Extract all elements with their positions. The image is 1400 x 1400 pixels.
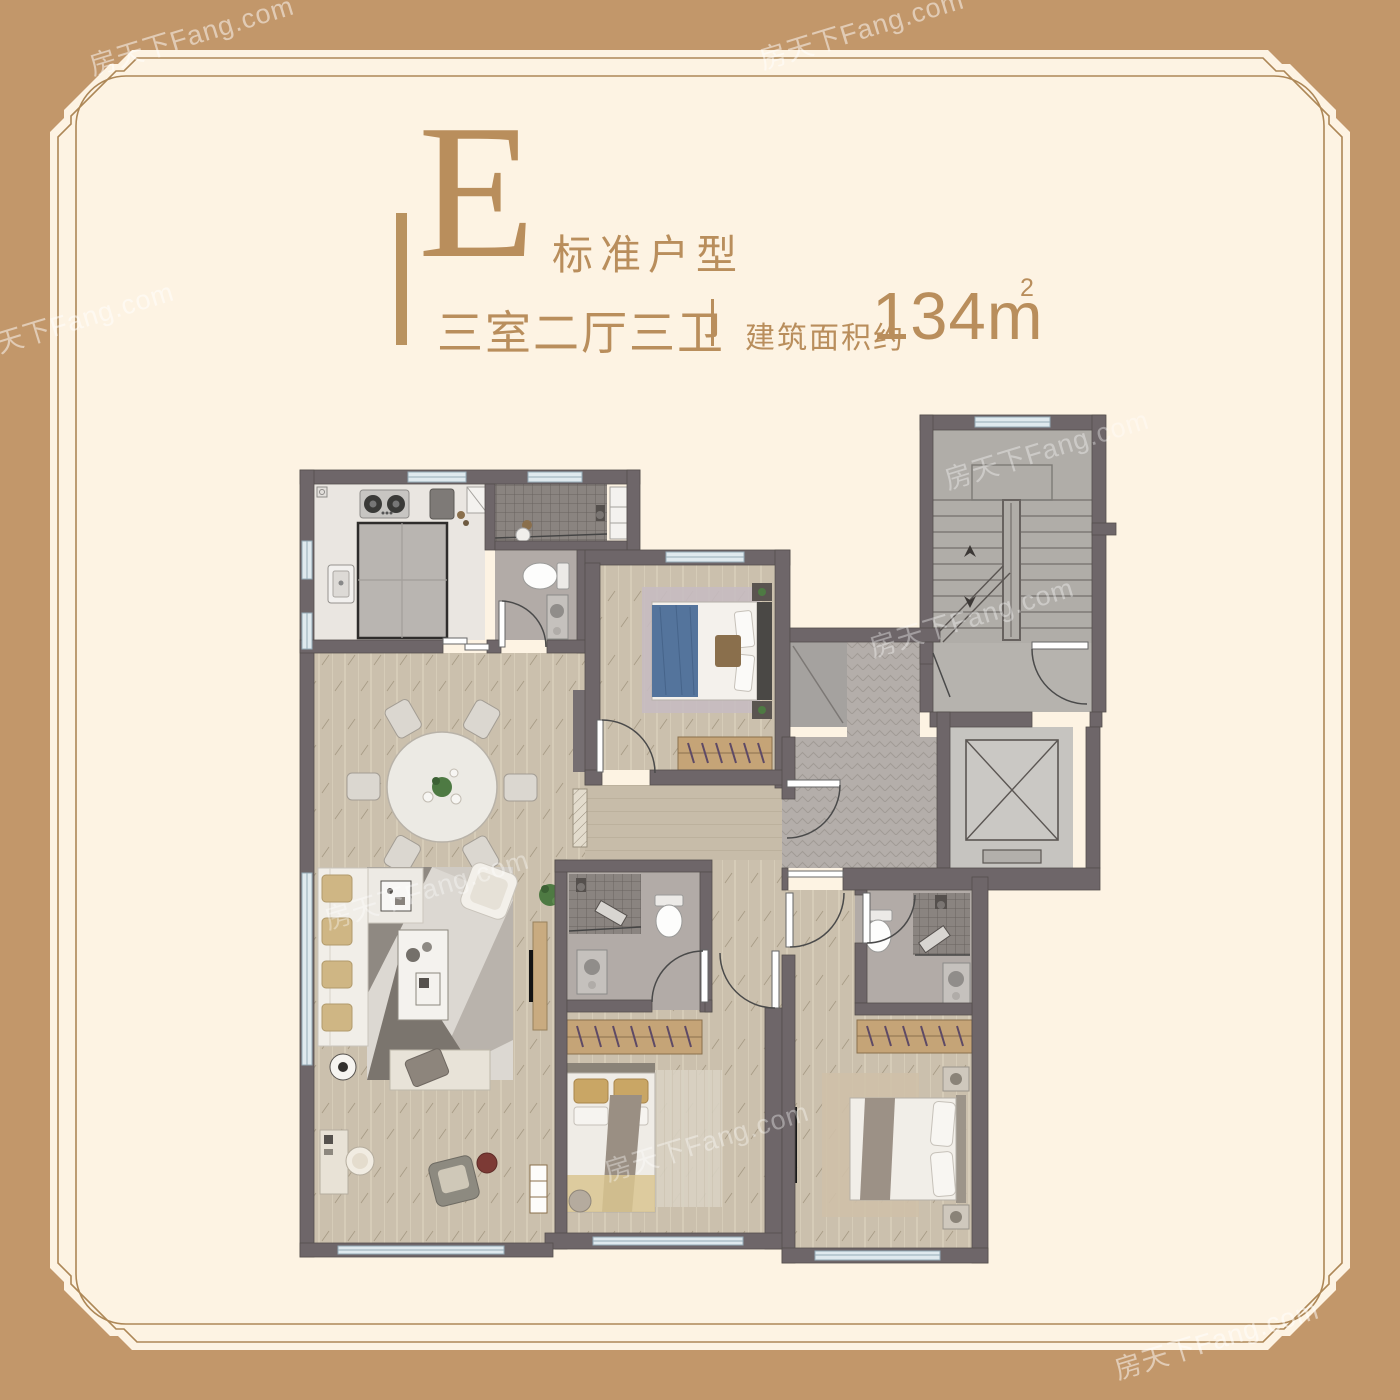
title-accent-bar [396,213,407,345]
floorplan-poster: E 标准户型 三室二厅三卫 建筑面积约 134m 2 [0,0,1400,1400]
unit-letter: E [418,96,535,288]
watermark: 房天下Fang.com [864,566,1078,665]
watermark: 房天下Fang.com [599,1090,813,1189]
area-value: 134m [872,278,1044,355]
spec-divider [711,299,714,346]
area-superscript: 2 [1020,274,1034,303]
watermark: 房天下Fang.com [84,0,298,83]
watermark: 房天下Fang.com [754,0,968,77]
dining-area [347,690,589,876]
kitchen [317,487,627,639]
bedroom-top [590,583,772,770]
watermark: 房天下Fang.com [319,838,533,937]
decorative-frame [0,0,1400,1400]
doors [443,601,1088,1008]
layout-spec: 三室二厅三卫 [437,297,725,363]
watermark: 房天下Fang.com [0,270,178,369]
watermark: 房天下Fang.com [939,398,1153,497]
bedroom-right [782,895,972,1229]
unit-type-label: 标准户型 [552,221,744,281]
elevator [966,740,1058,863]
watermark: 房天下Fang.com [1109,1288,1323,1387]
